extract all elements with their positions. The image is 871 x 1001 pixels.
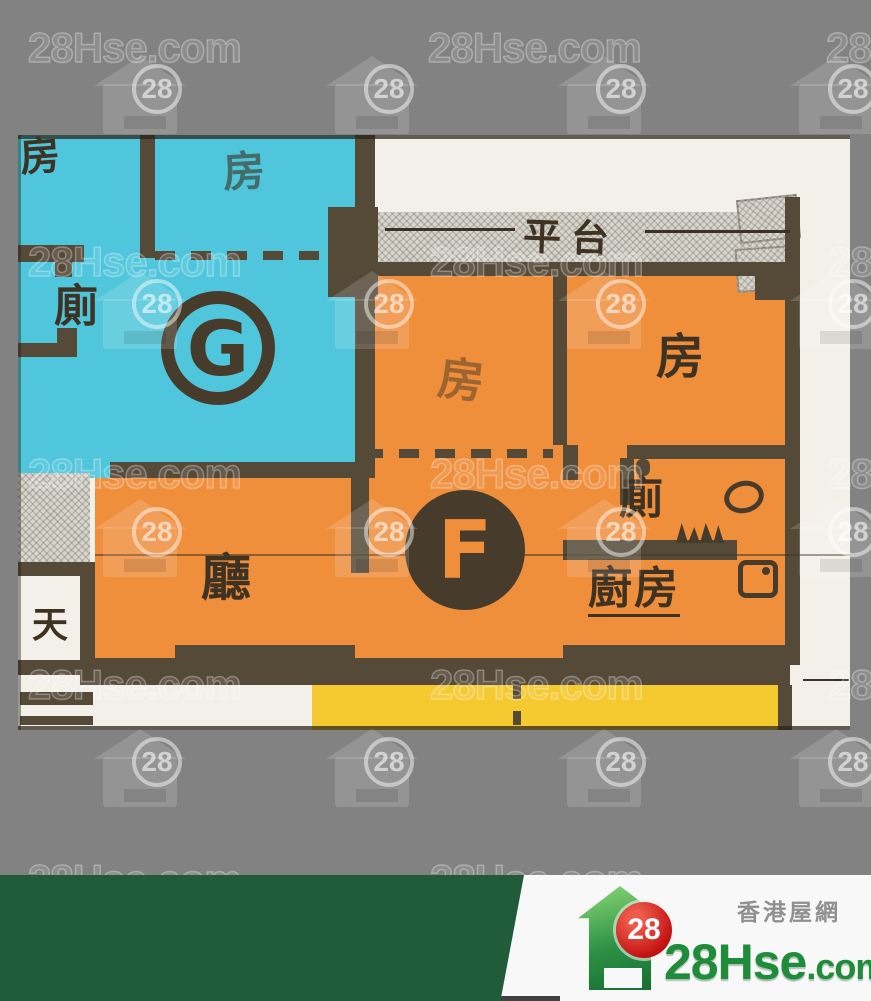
wall [18,343,77,357]
wall [175,645,355,659]
dashed-wall [155,251,348,260]
dimension-line [645,230,790,233]
footer-banner: 華冠大廈 Wah Koon Building 荷李活道181-199號 華冠大廈… [0,875,524,1001]
room-label: 房 [222,150,266,194]
watermark-house-icon: 28 [94,56,186,134]
floor-plan: 房 房 廁 G 平台 房 房 F 廁 廚房 廳 天 [18,135,850,730]
sink-icon [738,560,778,598]
dashed-wall [513,685,521,730]
sink-drain-icon [762,567,770,575]
watermark-house-icon: 28 [790,56,871,134]
kitchen-label: 廚房 [588,567,680,617]
watermark-house-icon: 28 [326,56,418,134]
watermark-house-icon: 28 [558,729,650,807]
wall [778,685,792,730]
plan-edge [18,135,21,730]
plan-edge [18,135,850,139]
unit-g-badge: G [161,291,275,405]
toilet-label: 廁 [619,477,663,521]
wall [363,262,800,276]
room-label: 房 [656,333,704,381]
unit-f-badge: F [405,490,525,610]
wall [18,660,95,675]
dimension-line [803,679,849,681]
wall [785,197,800,665]
wall [553,276,567,445]
page: 房 房 廁 G 平台 房 房 F 廁 廚房 廳 天 28Hse.com 28Hs… [0,0,871,1001]
toilet-label: 廁 [54,285,98,329]
watermark-text: 28Hse.com [28,24,241,72]
watermark-house-icon: 28 [94,729,186,807]
wall [55,260,72,277]
wall [20,716,93,725]
wall [627,445,785,459]
wall [355,135,375,478]
logo-brand-main: 28Hse [664,933,806,991]
dashed-wall [363,449,553,458]
plan-edge [18,726,850,730]
wall [563,445,578,480]
wall [20,692,93,705]
wall [755,276,785,300]
watermark-text: 28Hse.com [826,24,871,72]
hatch-block [18,473,90,575]
room-label: 房 [19,136,62,179]
unit-f-area [363,265,800,665]
logo-brand-suffix: .com [806,946,871,988]
living-room-label: 廳 [201,553,251,603]
wall [563,540,737,560]
terrace-label: 平台 [522,217,619,258]
logo-brand-text: 28Hse.com [664,933,871,991]
wall [18,245,84,262]
watermark-text: 28Hse.com [428,24,641,72]
logo-tagline: 香港屋網 [737,893,841,927]
logo-house-door [604,968,642,988]
room-label: 房 [435,354,486,405]
watermark-house-icon: 28 [326,729,418,807]
watermark-house-icon: 28 [558,56,650,134]
wall [110,462,370,478]
watermark-house-icon: 28 [790,729,871,807]
wall [351,463,369,573]
wall [80,658,790,685]
unit-below-area [312,685,778,730]
lightwell-label: 天 [32,607,68,643]
dimension-line [385,228,515,231]
wall [140,135,155,258]
